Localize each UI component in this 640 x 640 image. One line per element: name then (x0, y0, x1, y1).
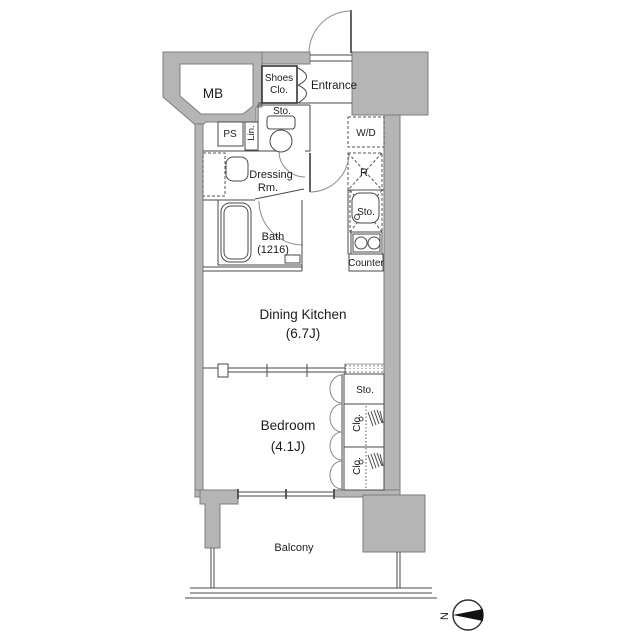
room-dressing: Dressing Rm. (203, 151, 293, 196)
floorplan-svg: Entrance Shoes Clo. MB PS Lin. Sto. W/D … (0, 0, 640, 640)
bedroom-label-2: (4.1J) (271, 439, 306, 454)
toilet-tank-icon (267, 116, 295, 129)
balcony-side-walls (211, 548, 400, 588)
mb-label: MB (203, 86, 223, 101)
hall-door-arc (310, 153, 349, 192)
closet-door-arcs (330, 375, 342, 489)
closet2-label: Clo. (352, 457, 363, 475)
bedroom-window-frames (238, 489, 334, 499)
room-shoes-closet: Shoes Clo. (262, 66, 307, 103)
fridge-label: R (360, 167, 368, 179)
dining-kitchen-label-1: Dining Kitchen (259, 307, 346, 322)
wall-balcony-left-stub (200, 490, 238, 548)
kitchen-counter: Sto. Counter (348, 190, 384, 271)
closet-sto-label: Sto. (356, 385, 374, 396)
vanity-counter (203, 153, 225, 196)
room-dining-kitchen: Dining Kitchen (6.7J) (259, 307, 346, 341)
wall-top-right-block (352, 52, 428, 115)
partition-pocket (218, 364, 228, 377)
linen-label: Lin. (246, 125, 257, 140)
sliding-door-panel-ticks (267, 364, 345, 377)
bath-label-1: Bath (262, 231, 285, 243)
entrance-door-arc-icon (309, 11, 351, 53)
room-toilet: Sto. (258, 105, 310, 177)
space-fridge: R (348, 153, 382, 190)
dressing-label-1: Dressing (249, 169, 292, 181)
washer-dryer-label: W/D (356, 128, 375, 139)
shoes-closet-label-2: Clo. (270, 85, 288, 96)
sliding-door-tracks (228, 368, 345, 372)
wall-top-band (262, 52, 310, 64)
closet-column: Sto. Clo. Clo. (330, 374, 384, 490)
wall-left (195, 124, 203, 497)
kitchen-sto-label: Sto. (357, 207, 375, 218)
washbasin-icon (226, 157, 248, 181)
room-bedroom: Bedroom (4.1J) (238, 418, 334, 499)
dining-kitchen-label-2: (6.7J) (286, 326, 321, 341)
toilet-bowl-icon (270, 130, 292, 152)
shoes-closet-label-1: Shoes (265, 73, 293, 84)
nook-washer-dryer: W/D (348, 117, 384, 147)
entrance-label: Entrance (311, 80, 357, 92)
dressing-label-2: Rm. (258, 182, 278, 194)
room-ps: PS (218, 122, 243, 146)
room-mb: MB (203, 86, 223, 101)
bathtub-icon (221, 203, 251, 262)
burner-right-icon (368, 237, 380, 249)
toilet-sto-label: Sto. (273, 106, 291, 117)
entrance-threshold (310, 55, 352, 61)
burner-left-icon (355, 237, 367, 249)
hatched-strip (345, 364, 384, 374)
hall-door (310, 153, 349, 192)
closet1-label: Clo. (352, 414, 363, 432)
balcony-label: Balcony (274, 542, 314, 554)
bath-label-2: (1216) (257, 244, 289, 256)
compass-north-label: N (439, 612, 451, 620)
wall-bottom-right-block (363, 495, 425, 552)
bifold-door-icon (298, 68, 307, 103)
cabinet-linen: Lin. (245, 122, 258, 150)
compass: N (439, 600, 483, 630)
ps-label: PS (223, 129, 237, 140)
counter-label: Counter (348, 258, 384, 269)
balcony-railing (185, 588, 437, 598)
floorplan-page: Entrance Shoes Clo. MB PS Lin. Sto. W/D … (0, 0, 640, 640)
bedroom-label-1: Bedroom (261, 418, 316, 433)
wall-right (384, 115, 400, 497)
bath-step (285, 255, 300, 263)
walls (163, 52, 428, 552)
room-bath: Bath (1216) (203, 189, 304, 271)
